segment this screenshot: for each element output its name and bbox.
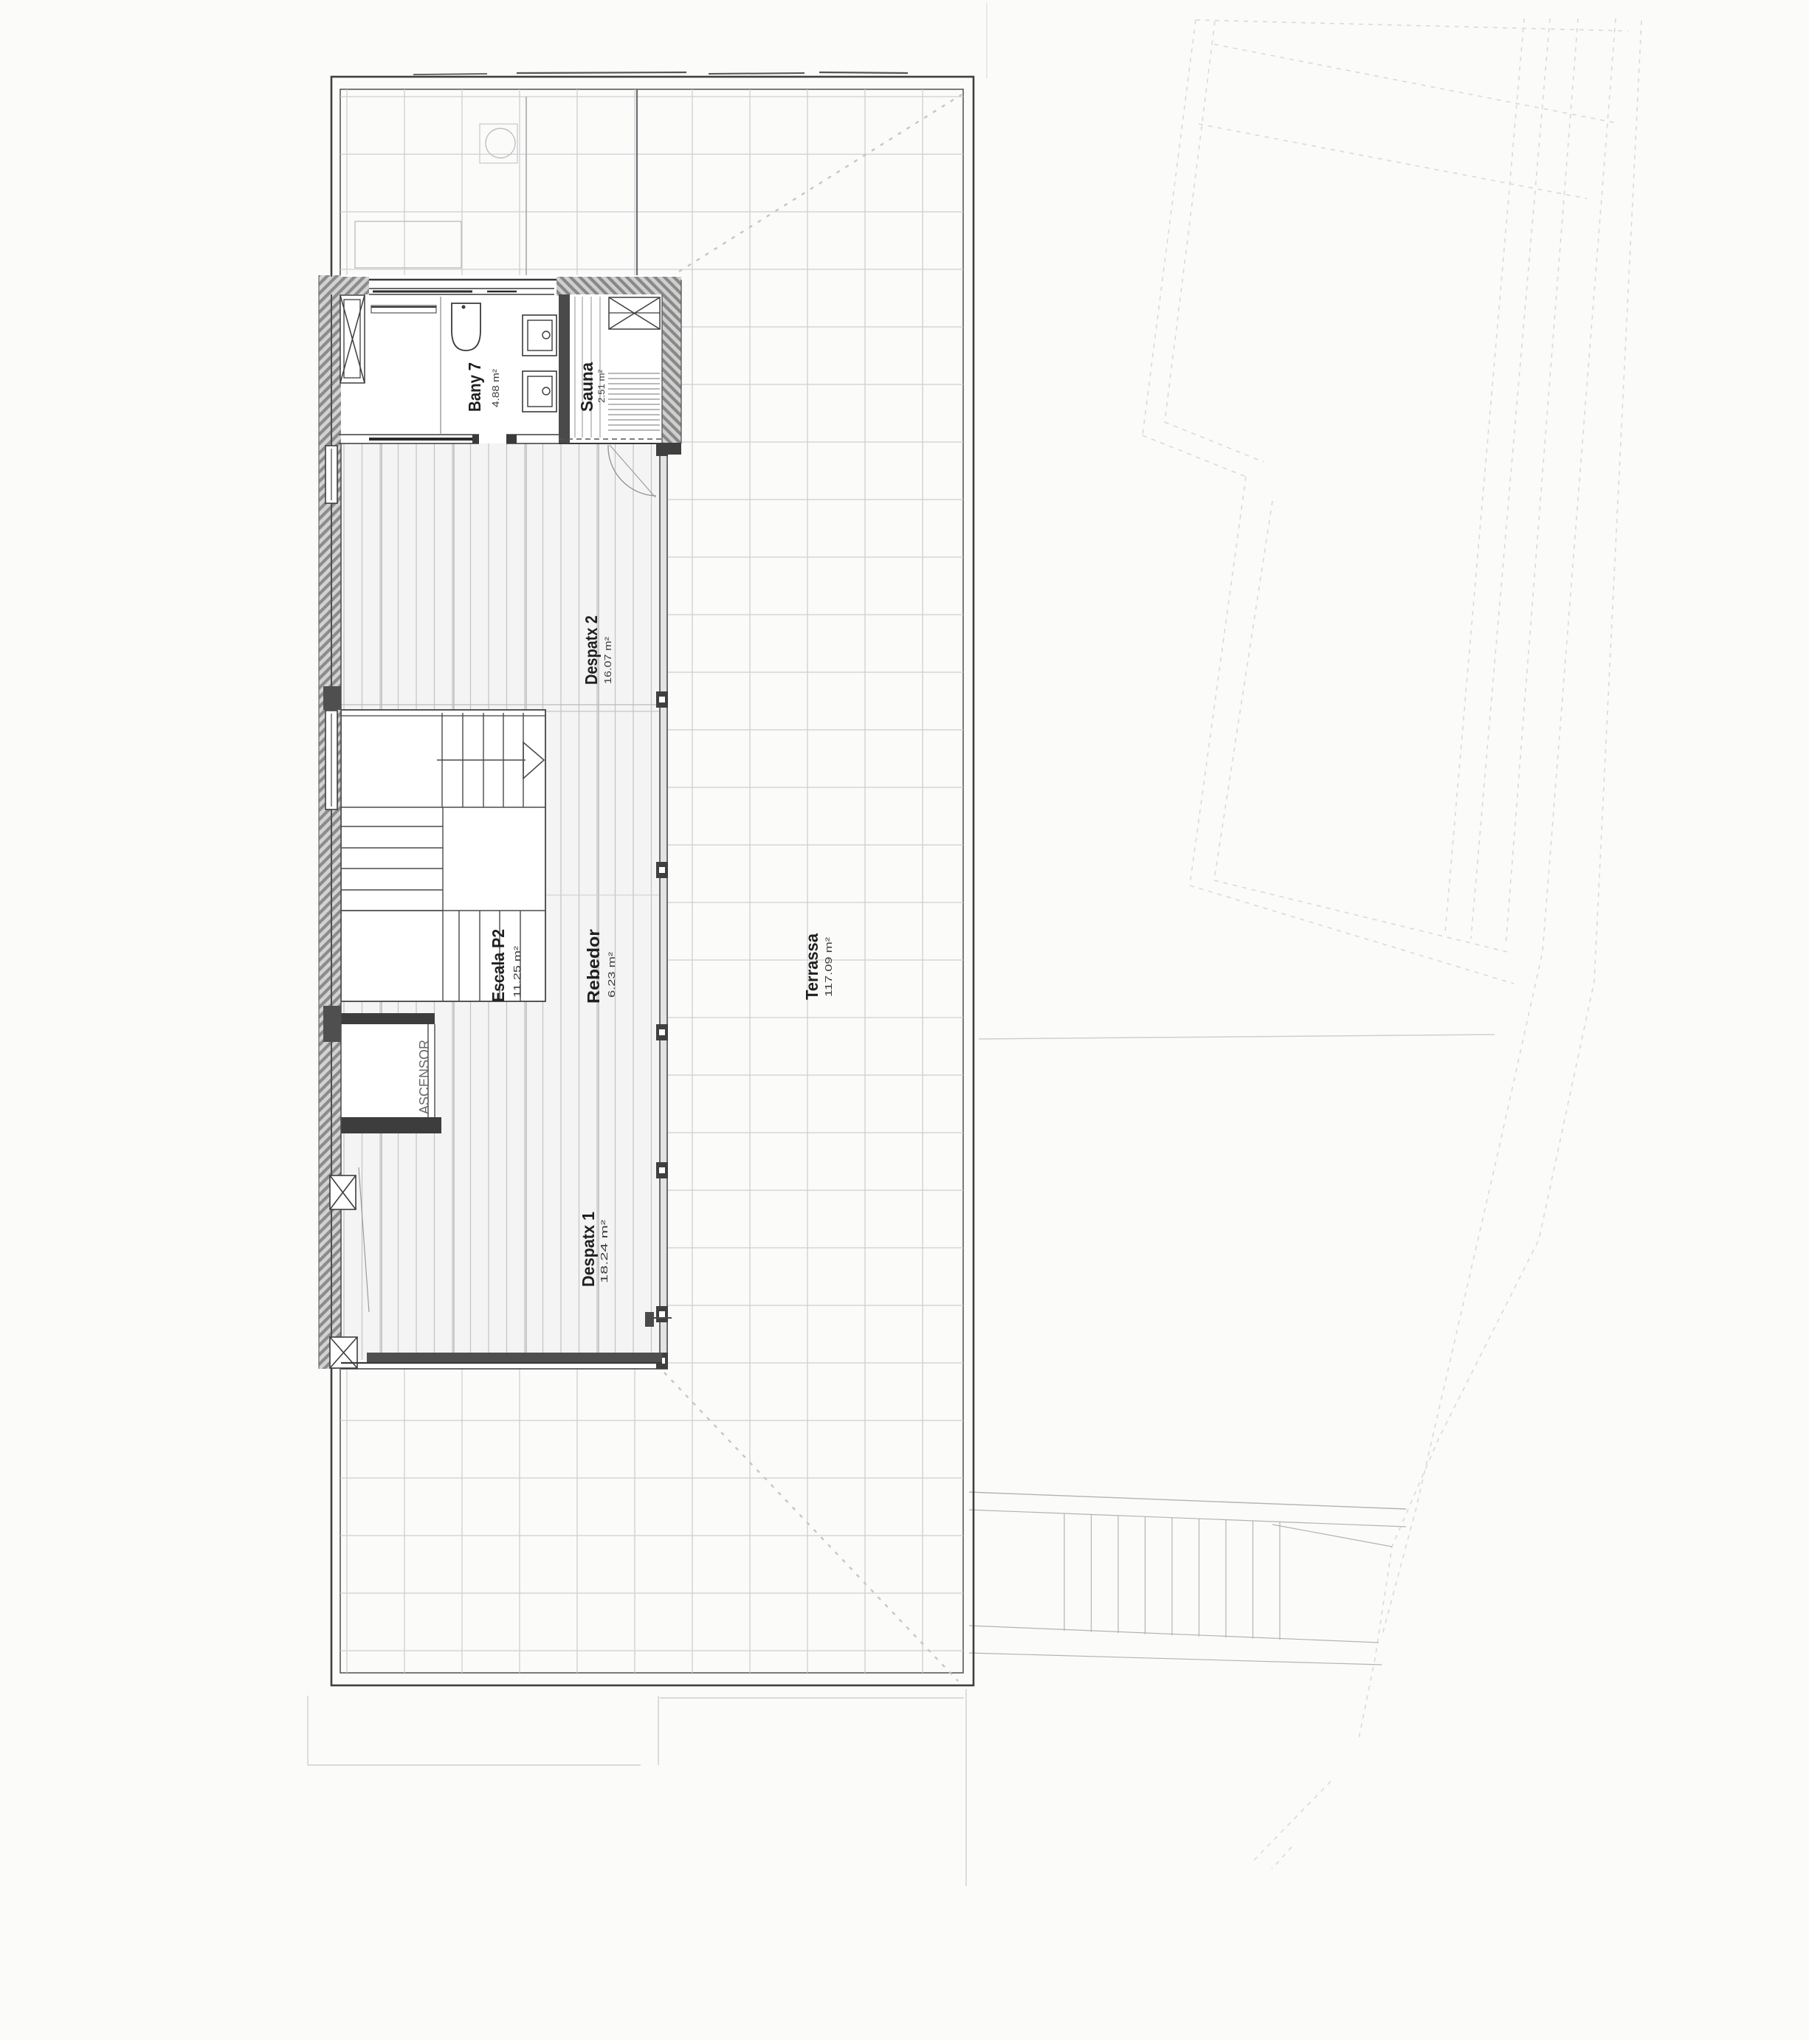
svg-text:Terrassa: Terrassa (802, 933, 821, 1000)
svg-text:ASCENSOR: ASCENSOR (417, 1040, 432, 1114)
svg-text:Bany 7: Bany 7 (465, 362, 484, 412)
svg-text:Despatx 1: Despatx 1 (579, 1212, 598, 1287)
svg-text:6.23 m²: 6.23 m² (606, 951, 617, 998)
svg-text:18.24 m²: 18.24 m² (599, 1219, 610, 1283)
svg-text:Escala P2: Escala P2 (489, 929, 508, 1002)
svg-text:16.07 m²: 16.07 m² (602, 636, 613, 684)
svg-text:Sauna: Sauna (577, 362, 596, 412)
svg-text:Despatx 2: Despatx 2 (582, 615, 601, 685)
svg-text:4.88 m²: 4.88 m² (490, 368, 501, 407)
svg-text:2.51 m²: 2.51 m² (596, 370, 607, 403)
svg-text:11.25 m²: 11.25 m² (511, 945, 523, 998)
svg-text:117.09 m²: 117.09 m² (823, 936, 834, 997)
svg-text:Rebedor: Rebedor (584, 929, 603, 1004)
